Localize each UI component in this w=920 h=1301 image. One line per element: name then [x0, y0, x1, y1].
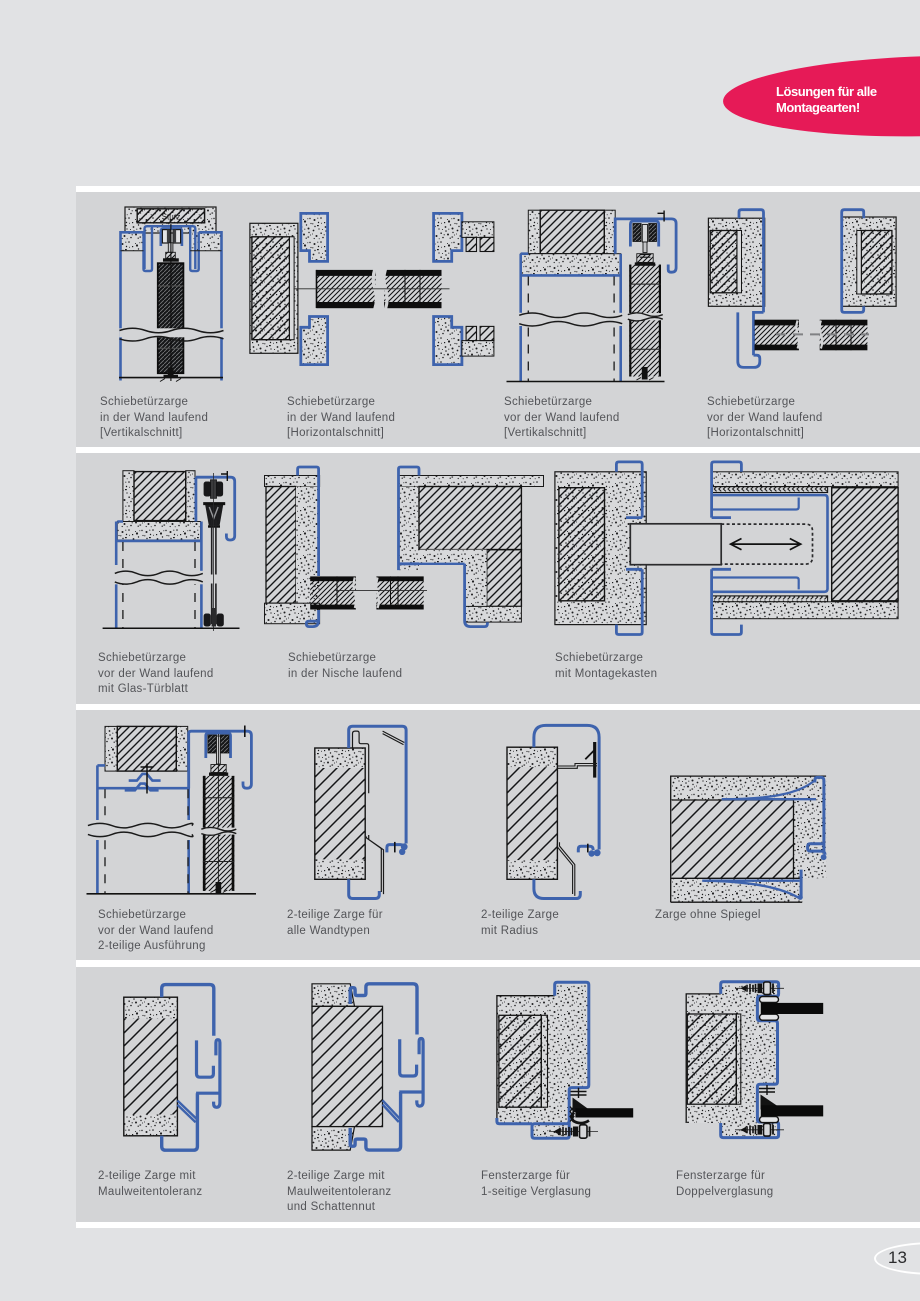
- svg-text:Sturz: Sturz: [162, 213, 181, 222]
